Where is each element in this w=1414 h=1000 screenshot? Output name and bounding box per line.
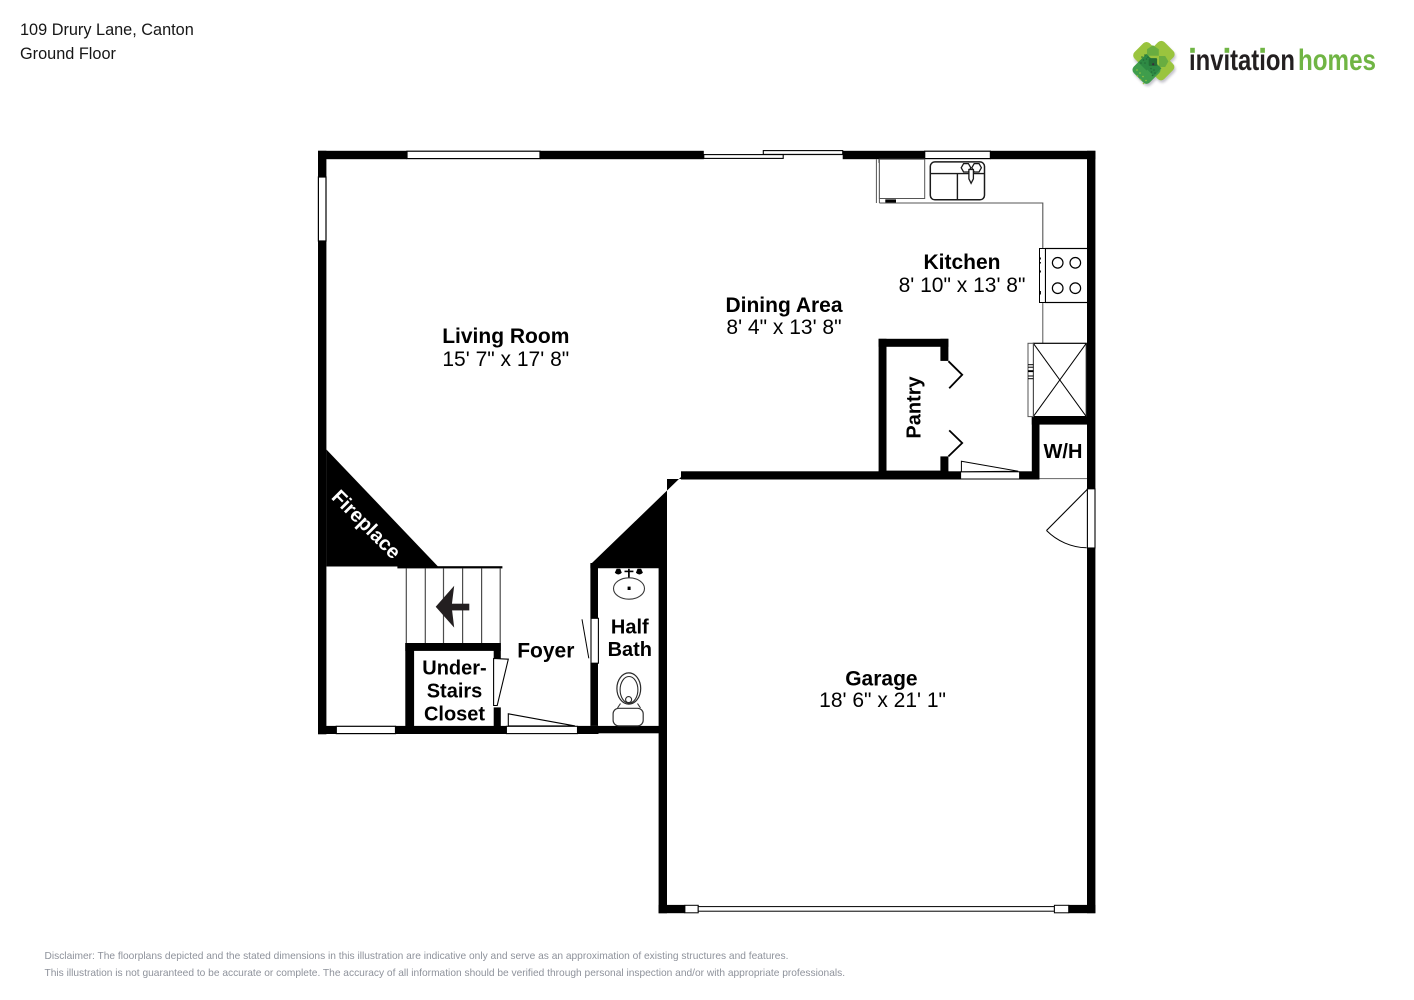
svg-text:Half: Half	[611, 616, 649, 638]
svg-text:Under-: Under-	[422, 657, 486, 679]
svg-text:18' 6" x 21' 1": 18' 6" x 21' 1"	[819, 689, 946, 712]
svg-text:8' 10" x 13' 8": 8' 10" x 13' 8"	[899, 274, 1026, 297]
svg-text:W/H: W/H	[1044, 441, 1083, 463]
svg-text:Garage: Garage	[845, 667, 917, 690]
svg-text:8' 4" x 13' 8": 8' 4" x 13' 8"	[726, 316, 841, 339]
svg-text:Closet: Closet	[424, 703, 485, 725]
svg-text:Pantry: Pantry	[904, 376, 926, 439]
svg-text:15' 7" x 17' 8": 15' 7" x 17' 8"	[442, 348, 569, 371]
svg-text:Kitchen: Kitchen	[923, 251, 1000, 274]
svg-text:Living Room: Living Room	[442, 325, 569, 348]
svg-text:Foyer: Foyer	[517, 639, 574, 662]
svg-text:Bath: Bath	[608, 639, 652, 661]
svg-text:Stairs: Stairs	[427, 680, 483, 702]
svg-text:Dining Area: Dining Area	[725, 294, 842, 317]
